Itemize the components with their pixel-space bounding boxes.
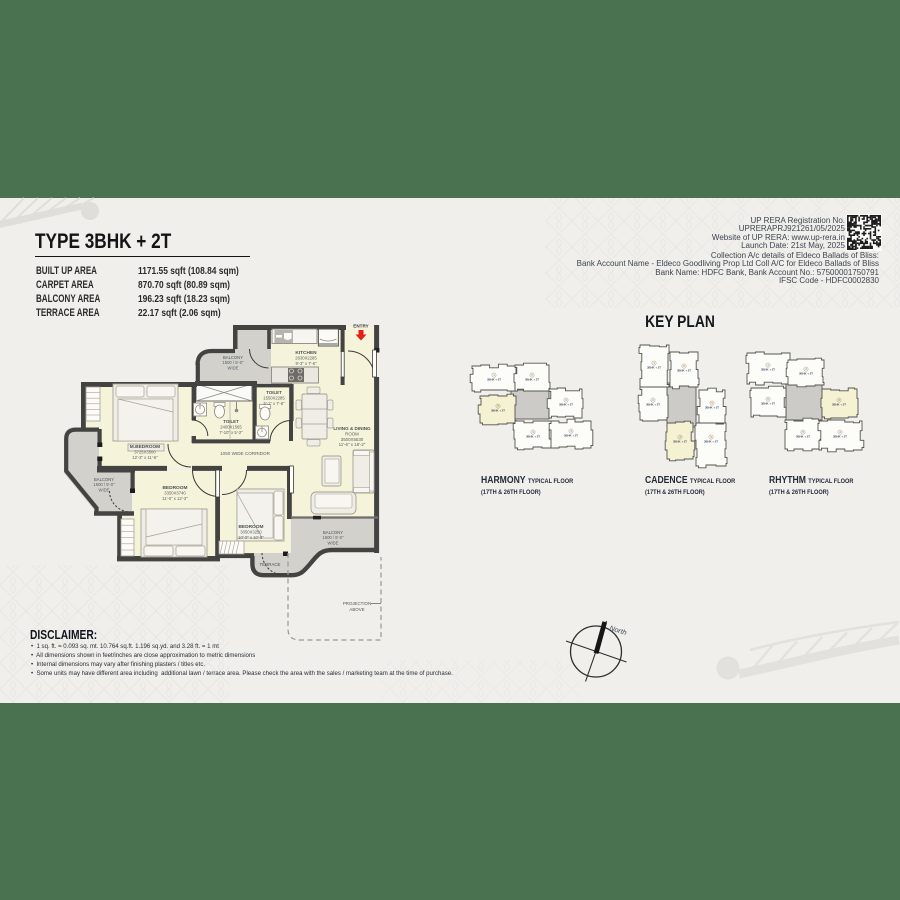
svg-text:10'-0" x 10'-8": 10'-0" x 10'-8" <box>238 535 264 540</box>
svg-text:3BHK + 2T: 3BHK + 2T <box>673 440 687 444</box>
svg-text:LIVING & DINING: LIVING & DINING <box>333 426 371 431</box>
svg-text:3BHK + 2T: 3BHK + 2T <box>564 434 578 438</box>
svg-text:12'-3" x 11'-6": 12'-3" x 11'-6" <box>132 455 158 460</box>
svg-text:3BHK + 2T: 3BHK + 2T <box>677 369 691 373</box>
svg-text:WIDE: WIDE <box>328 540 339 545</box>
svg-text:3725X3500: 3725X3500 <box>134 450 156 455</box>
svg-text:2630X2285: 2630X2285 <box>295 356 317 361</box>
svg-text:7'-10" x 5'-2": 7'-10" x 5'-2" <box>219 430 243 435</box>
svg-text:TOILET: TOILET <box>223 419 239 424</box>
svg-text:WIDE: WIDE <box>228 365 239 370</box>
svg-text:9'-3" x 7'-6": 9'-3" x 7'-6" <box>295 361 317 366</box>
svg-text:3BHK + 2T: 3BHK + 2T <box>646 403 660 407</box>
svg-text:North: North <box>608 623 627 637</box>
svg-text:3BHK + 2T: 3BHK + 2T <box>704 440 718 444</box>
svg-text:3050X3250: 3050X3250 <box>240 530 262 535</box>
svg-text:ENTRY: ENTRY <box>353 324 368 329</box>
svg-text:3BHK + 2T: 3BHK + 2T <box>832 403 846 407</box>
svg-text:11'-6" x 18'-2": 11'-6" x 18'-2" <box>339 442 366 447</box>
svg-text:ROOM: ROOM <box>345 431 359 436</box>
svg-text:5'-1" x 7'-6": 5'-1" x 7'-6" <box>263 401 285 406</box>
svg-text:3BHK + 2T: 3BHK + 2T <box>647 366 661 370</box>
svg-text:TERRACE: TERRACE <box>260 562 281 567</box>
svg-text:TOILET: TOILET <box>266 390 282 395</box>
svg-text:3BHK + 2T: 3BHK + 2T <box>559 403 573 407</box>
svg-text:3BHK + 2T: 3BHK + 2T <box>761 368 775 372</box>
svg-text:3500X5530: 3500X5530 <box>341 437 364 442</box>
svg-text:3350X3740: 3350X3740 <box>164 491 186 496</box>
svg-text:PROJECTION: PROJECTION <box>343 601 371 606</box>
svg-text:3BHK + 2T: 3BHK + 2T <box>491 409 505 413</box>
svg-text:11'-0" x 12'-3": 11'-0" x 12'-3" <box>162 496 188 501</box>
svg-text:3BHK + 2T: 3BHK + 2T <box>526 435 540 439</box>
svg-text:3BHK + 2T: 3BHK + 2T <box>796 435 810 439</box>
svg-text:3BHK + 2T: 3BHK + 2T <box>525 378 539 382</box>
svg-text:WIDE: WIDE <box>99 487 110 492</box>
svg-text:3BHK + 2T: 3BHK + 2T <box>487 378 501 382</box>
svg-text:3BHK + 2T: 3BHK + 2T <box>705 406 719 410</box>
svg-text:ABOVE: ABOVE <box>349 607 364 612</box>
svg-text:1550X2285: 1550X2285 <box>263 395 285 400</box>
svg-text:2400X1565: 2400X1565 <box>220 424 242 429</box>
svg-text:1050 WIDE CORRIDOR: 1050 WIDE CORRIDOR <box>220 451 270 456</box>
svg-text:3BHK + 2T: 3BHK + 2T <box>799 372 813 376</box>
svg-text:3BHK + 2T: 3BHK + 2T <box>833 435 847 439</box>
svg-text:3BHK + 2T: 3BHK + 2T <box>761 402 775 406</box>
